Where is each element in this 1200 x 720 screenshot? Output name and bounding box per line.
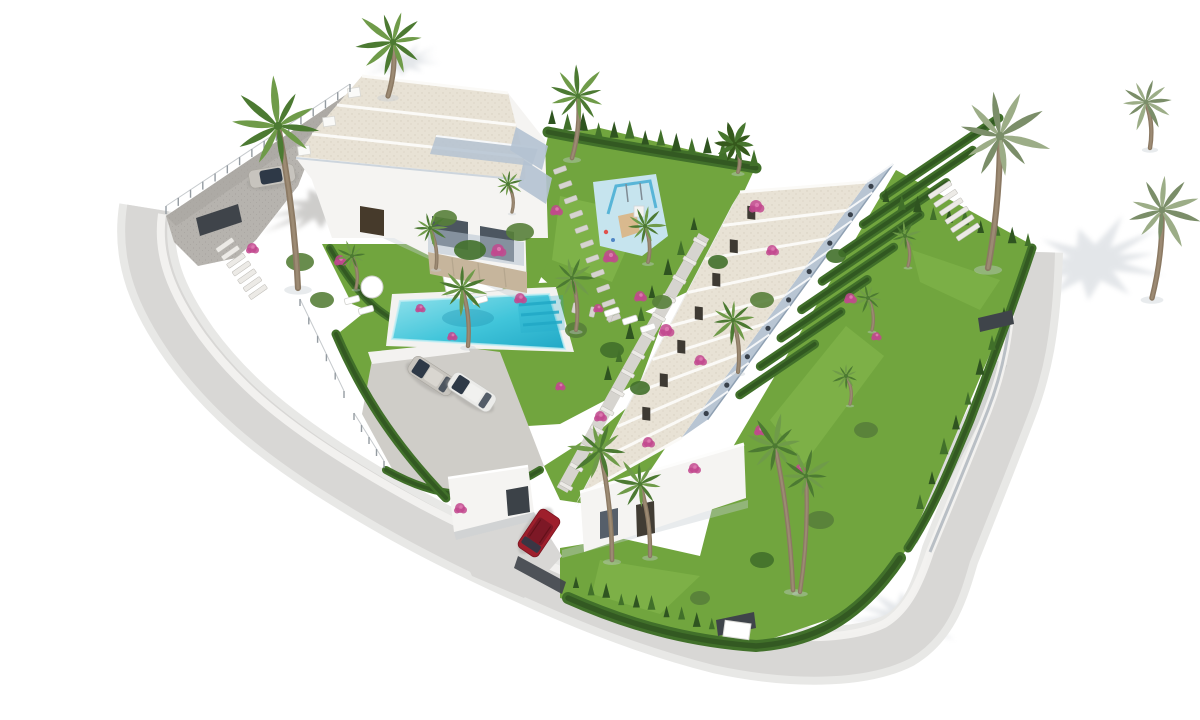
facade-door <box>642 407 650 421</box>
palm-crown-center <box>1159 207 1166 214</box>
palm-crown-center <box>506 182 510 186</box>
palm-crown-center <box>570 276 574 280</box>
site-plan-render <box>0 0 1200 720</box>
roof-parapet-box <box>323 116 336 127</box>
shrub <box>750 552 774 568</box>
palm-crown-center <box>996 132 1004 140</box>
toy-blue <box>611 238 615 242</box>
flower-highlight <box>459 505 463 509</box>
flower-highlight <box>609 253 613 257</box>
palm-crown-center <box>866 296 870 300</box>
flower <box>491 249 498 256</box>
flower <box>749 205 756 212</box>
shrub <box>854 422 878 438</box>
terrace-chair <box>724 383 729 388</box>
flower-highlight <box>755 203 759 207</box>
render-canvas <box>0 0 1200 720</box>
flower-highlight <box>251 245 255 249</box>
facade-door <box>660 373 668 387</box>
palm-crown-center <box>804 474 809 479</box>
flower-highlight <box>876 334 879 337</box>
palm-crown-center <box>772 443 777 448</box>
flower-highlight <box>555 207 559 211</box>
flower-highlight <box>420 306 423 309</box>
flower <box>754 430 760 436</box>
terrace-chair <box>786 297 791 302</box>
palm-crown-center <box>733 142 737 146</box>
flower-highlight <box>771 247 775 251</box>
terrace-chair <box>827 241 832 246</box>
flower-highlight <box>598 306 601 309</box>
flower <box>871 336 876 341</box>
shrub <box>506 223 534 241</box>
flower <box>844 298 850 304</box>
villa-door <box>360 206 384 236</box>
palm-crown-center <box>390 39 396 45</box>
facade-door <box>730 239 738 253</box>
flower-highlight <box>693 465 697 469</box>
flower <box>688 468 694 474</box>
flower <box>454 508 460 514</box>
terrace-chair <box>848 212 853 217</box>
flower-highlight <box>665 327 669 331</box>
terrace-chair <box>704 411 709 416</box>
flower <box>642 442 648 448</box>
flower-highlight <box>639 293 643 297</box>
palm-crown-center <box>643 224 647 228</box>
flower-highlight <box>560 384 563 387</box>
shrub <box>826 249 846 263</box>
toy-red <box>604 230 608 234</box>
facade-door <box>712 273 720 287</box>
palm-crown-center <box>1144 100 1149 105</box>
terrace-chair <box>745 354 750 359</box>
shrub <box>454 240 486 260</box>
garage-door <box>506 486 530 516</box>
facade-door <box>677 340 685 354</box>
shrub <box>652 295 672 309</box>
shrub <box>690 591 710 605</box>
shrub <box>286 253 314 271</box>
shrub <box>806 511 834 529</box>
flower-highlight <box>519 295 523 299</box>
palm-crown-center <box>731 318 735 322</box>
terrace-chair <box>765 326 770 331</box>
flower <box>593 308 598 313</box>
flower <box>766 250 772 256</box>
flower-highlight <box>849 295 853 299</box>
palm-crown-center <box>460 286 465 291</box>
palm-crown-center <box>638 482 643 487</box>
palm-crown-center <box>428 226 432 230</box>
flower <box>415 308 420 313</box>
parasol <box>361 276 383 298</box>
terrace-chair <box>868 184 873 189</box>
flower <box>594 416 600 422</box>
flower <box>694 360 700 366</box>
flower-highlight <box>699 357 703 361</box>
shrub <box>750 292 774 308</box>
flower <box>447 336 452 341</box>
flower-highlight <box>497 247 501 251</box>
flower <box>514 298 520 304</box>
flower <box>555 386 560 391</box>
flower <box>246 248 252 254</box>
flower <box>603 255 610 262</box>
palm-crown-center <box>844 374 848 378</box>
flower-highlight <box>647 439 651 443</box>
boundary-wall-post <box>723 620 751 639</box>
shrub <box>630 381 650 395</box>
terrace-chair <box>807 269 812 274</box>
flower-highlight <box>599 413 603 417</box>
shrub <box>708 255 728 269</box>
shrub <box>600 342 624 358</box>
flower <box>334 260 340 266</box>
flower <box>634 296 640 302</box>
palm-crown-center <box>903 234 907 238</box>
palm-crown-center <box>274 122 282 130</box>
flower <box>659 329 666 336</box>
flower-highlight <box>452 334 455 337</box>
flower <box>550 210 556 216</box>
shrub <box>310 292 334 308</box>
facade-door <box>695 306 703 320</box>
palm-crown-center <box>575 93 580 98</box>
palm-crown-center <box>350 254 354 258</box>
palm-crown-center <box>597 447 602 452</box>
